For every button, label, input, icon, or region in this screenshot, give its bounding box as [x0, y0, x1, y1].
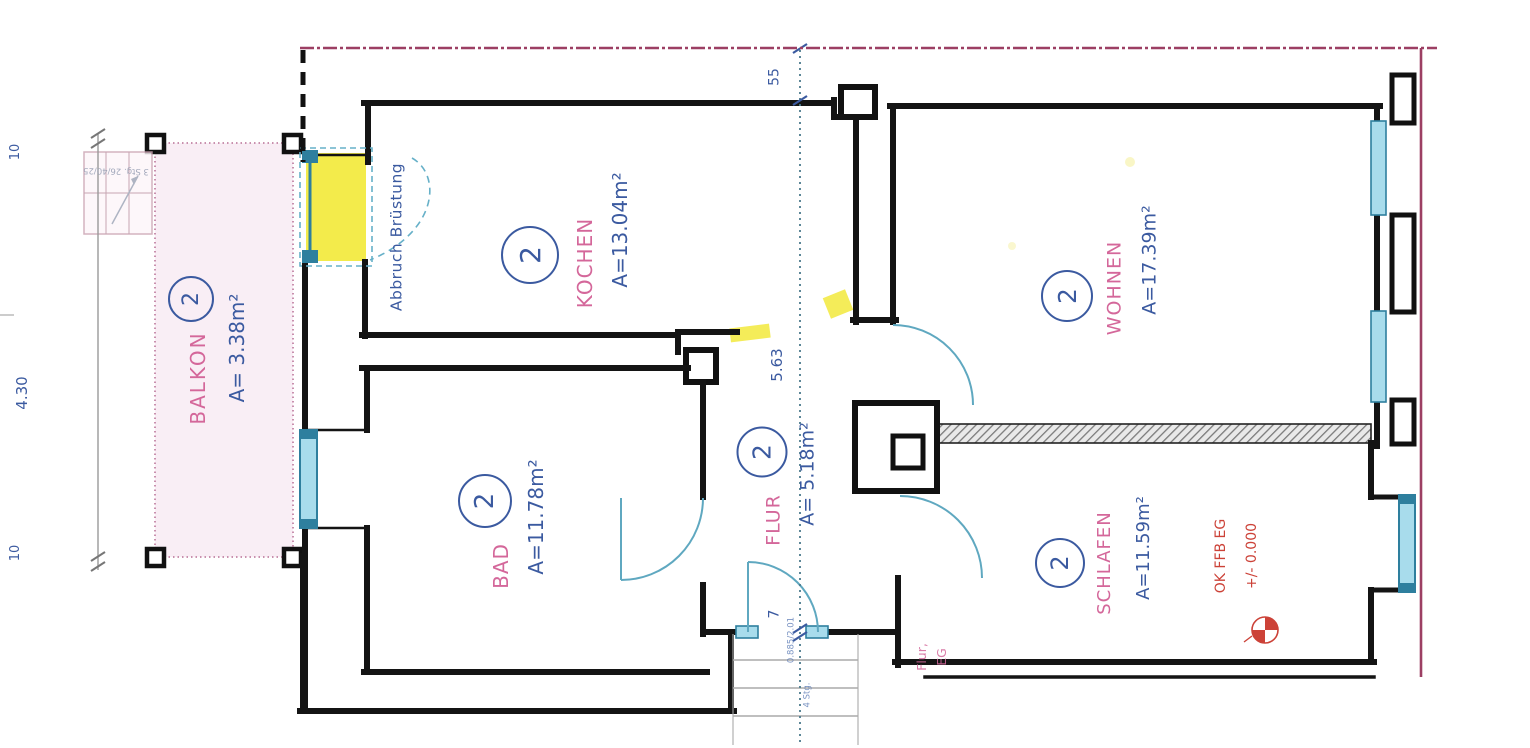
floor-plan: 2 BALKON A= 3.38m² 2 KOCHEN A=13.04m² 2 …: [0, 0, 1530, 748]
bad-door-arc: [621, 498, 703, 580]
dim-left-bottom: 10: [9, 545, 23, 562]
level-marker: [1244, 617, 1278, 643]
room-name-kochen: KOCHEN: [574, 218, 596, 308]
schlafen-window: [1399, 495, 1415, 592]
wohnen-window-1: [1371, 121, 1386, 215]
dim-flur-length: 5.63: [769, 348, 786, 381]
hatched-partition-wall: [937, 424, 1371, 443]
room-area-bad: A=11.78m²: [525, 459, 547, 574]
entrance-door-arc: [748, 562, 818, 632]
flur-eg-line2: EG: [932, 643, 952, 671]
flur-eg-line1: Flur,: [912, 643, 932, 671]
room-area-balkon: A= 3.38m²: [226, 294, 248, 403]
dim-wall-thickness: 55: [767, 68, 782, 86]
entrance-step-note: 4 Stg.: [803, 683, 812, 708]
level-annotation: OK FFB EG +/- 0.000: [1206, 519, 1268, 594]
room-name-schlafen: SCHLAFEN: [1095, 511, 1115, 614]
flur-eg-note: Flur, EG: [912, 643, 952, 671]
room-number-kochen: 2: [501, 226, 559, 284]
room-area-kochen: A=13.04m²: [609, 172, 631, 287]
wohnen-door-arc: [893, 325, 973, 405]
dim-left-middle: 4.30: [14, 376, 31, 409]
room-number-bad: 2: [458, 474, 512, 528]
balcony-stair-note: 3 Stg. 26/40/25: [83, 165, 149, 175]
room-number-balkon: 2: [168, 276, 214, 322]
room-number-wohnen: 2: [1041, 270, 1093, 322]
entrance-door-note: 0.885/2.01: [787, 617, 796, 663]
schlafen-door-arc: [900, 496, 982, 578]
room-name-flur: FLUR: [764, 494, 785, 546]
room-area-schlafen: A=11.59m²: [1134, 496, 1154, 600]
dimension-lines: [0, 44, 807, 745]
level-value: +/- 0.000: [1237, 519, 1268, 594]
dim-left-top: 10: [9, 144, 23, 161]
facade-pilasters: [1392, 75, 1414, 444]
wohnen-window-2: [1371, 311, 1386, 402]
bad-window: [300, 430, 317, 528]
abbruch-bruestung-note: Abbruch Brüstung: [388, 163, 405, 311]
room-name-bad: BAD: [490, 543, 512, 589]
level-label: OK FFB EG: [1206, 519, 1237, 594]
room-area-wohnen: A=17.39m²: [1140, 205, 1161, 314]
room-name-balkon: BALKON: [187, 331, 209, 424]
demolition-marks: [306, 153, 1135, 342]
room-number-schlafen: 2: [1035, 538, 1085, 588]
room-name-wohnen: WOHNEN: [1105, 241, 1126, 335]
balcony-slab: [147, 135, 301, 566]
dim-threshold: 7: [767, 610, 782, 619]
room-number-flur: 2: [737, 427, 788, 478]
room-area-flur: A= 5.18m²: [798, 422, 819, 525]
